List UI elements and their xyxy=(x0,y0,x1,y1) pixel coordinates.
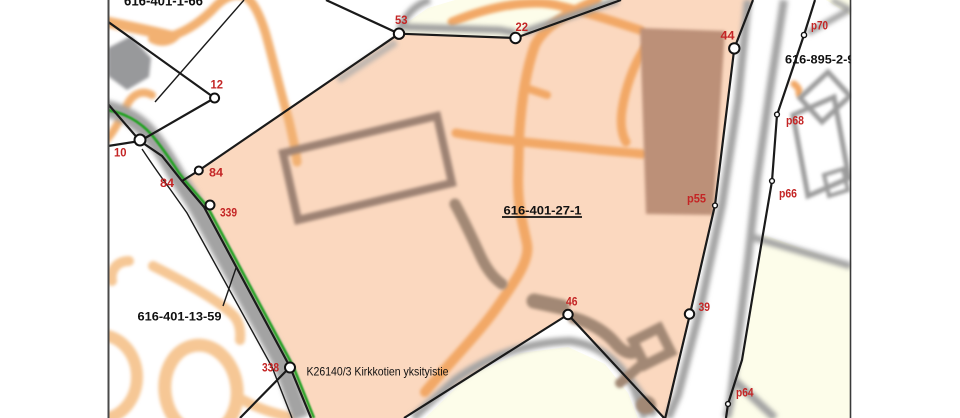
svg-text:12: 12 xyxy=(211,78,224,92)
svg-text:53: 53 xyxy=(395,13,408,27)
svg-text:p70: p70 xyxy=(811,19,828,33)
svg-text:39: 39 xyxy=(699,300,711,314)
svg-text:46: 46 xyxy=(566,295,578,309)
svg-text:10: 10 xyxy=(114,146,127,160)
svg-text:616-895-2-9: 616-895-2-9 xyxy=(785,53,855,67)
svg-text:p64: p64 xyxy=(736,386,754,400)
svg-text:616-401-27-1: 616-401-27-1 xyxy=(504,204,582,218)
svg-text:K26140/3 Kirkkotien yksityisti: K26140/3 Kirkkotien yksityistie xyxy=(307,365,449,379)
svg-text:p66: p66 xyxy=(779,187,797,201)
svg-text:44: 44 xyxy=(721,29,735,43)
svg-text:22: 22 xyxy=(516,20,529,34)
svg-text:84: 84 xyxy=(209,166,223,180)
svg-text:616-401-1-66: 616-401-1-66 xyxy=(124,0,203,9)
svg-text:p55: p55 xyxy=(687,192,706,206)
svg-text:84: 84 xyxy=(160,176,174,190)
svg-text:p68: p68 xyxy=(786,114,804,128)
svg-text:338: 338 xyxy=(262,361,279,375)
svg-text:339: 339 xyxy=(220,206,237,220)
svg-text:616-401-13-59: 616-401-13-59 xyxy=(138,310,222,324)
